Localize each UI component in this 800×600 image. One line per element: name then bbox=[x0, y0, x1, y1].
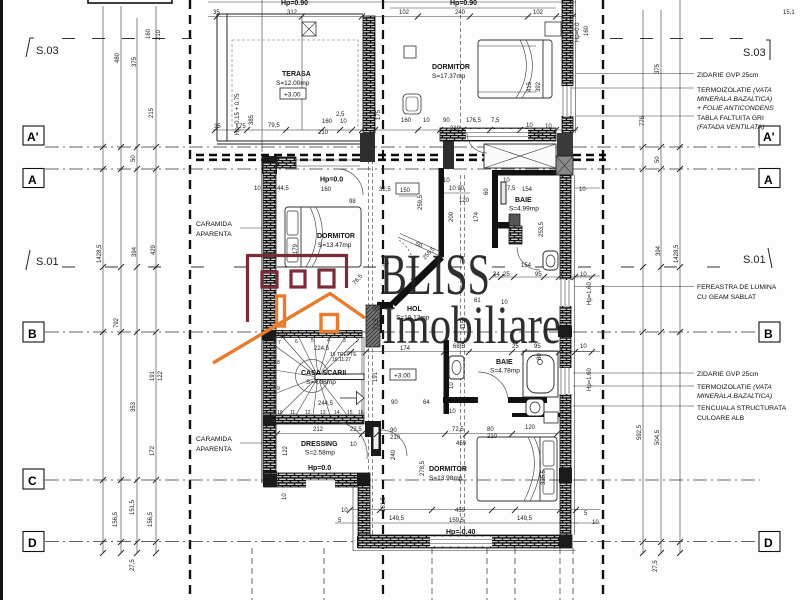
svg-text:Hp=0.90: Hp=0.90 bbox=[450, 0, 477, 7]
svg-text:DORMITOR: DORMITOR bbox=[429, 466, 467, 473]
svg-text:S=17.37mp: S=17.37mp bbox=[432, 73, 466, 80]
svg-text:210: 210 bbox=[450, 126, 461, 132]
svg-text:160: 160 bbox=[321, 187, 332, 193]
svg-text:+3.00: +3.00 bbox=[284, 92, 301, 99]
svg-text:176,5: 176,5 bbox=[466, 118, 482, 124]
svg-text:Hp=1.60: Hp=1.60 bbox=[587, 281, 593, 305]
svg-text:120: 120 bbox=[459, 198, 470, 204]
svg-text:10: 10 bbox=[580, 272, 587, 278]
svg-text:S=4.78mp: S=4.78mp bbox=[490, 368, 520, 375]
svg-text:14.: 14. bbox=[334, 410, 341, 416]
svg-text:156,5: 156,5 bbox=[113, 511, 119, 527]
svg-text:A': A' bbox=[27, 130, 39, 144]
svg-text:394: 394 bbox=[132, 246, 138, 257]
svg-text:459: 459 bbox=[455, 508, 466, 514]
svg-text:+ FOLIE ANTICONDENS: + FOLIE ANTICONDENS bbox=[697, 105, 774, 112]
svg-text:8: 8 bbox=[277, 360, 280, 366]
svg-text:Hp=-0.40: Hp=-0.40 bbox=[446, 529, 475, 536]
svg-text:ZIDARIE GVP 25cm: ZIDARIE GVP 25cm bbox=[697, 371, 759, 378]
svg-text:16.: 16. bbox=[358, 410, 365, 416]
svg-text:4: 4 bbox=[327, 338, 330, 344]
svg-text:13.: 13. bbox=[320, 410, 327, 416]
svg-text:CARAMIDA: CARAMIDA bbox=[196, 436, 232, 443]
svg-text:10: 10 bbox=[423, 118, 430, 124]
svg-text:10: 10 bbox=[443, 178, 450, 184]
svg-text:44,5: 44,5 bbox=[277, 186, 289, 192]
svg-text:S=4.06mp: S=4.06mp bbox=[306, 379, 336, 386]
svg-text:5: 5 bbox=[311, 338, 314, 344]
svg-text:11.: 11. bbox=[290, 410, 297, 416]
svg-text:1428,5: 1428,5 bbox=[97, 244, 103, 263]
svg-text:504,5: 504,5 bbox=[655, 429, 661, 445]
svg-text:215: 215 bbox=[149, 107, 155, 118]
svg-text:160: 160 bbox=[584, 25, 590, 36]
svg-text:APARENTA: APARENTA bbox=[196, 231, 232, 238]
svg-text:TERMOIZOLATIE (VATA: TERMOIZOLATIE (VATA bbox=[697, 87, 772, 94]
svg-text:S.03: S.03 bbox=[743, 47, 766, 59]
svg-text:16.11.27: 16.11.27 bbox=[332, 357, 351, 363]
svg-text:210: 210 bbox=[156, 29, 162, 40]
svg-text:27,5: 27,5 bbox=[130, 559, 136, 571]
svg-text:S=13.47mp: S=13.47mp bbox=[318, 242, 352, 249]
svg-text:S.01: S.01 bbox=[36, 256, 59, 268]
svg-text:TENCUIALA STRUCTURATA: TENCUIALA STRUCTURATA bbox=[697, 405, 787, 412]
svg-text:A: A bbox=[764, 173, 773, 187]
svg-text:60: 60 bbox=[484, 188, 490, 195]
svg-text:73,5: 73,5 bbox=[374, 318, 380, 330]
svg-text:160: 160 bbox=[401, 118, 412, 124]
svg-text:APARENTA: APARENTA bbox=[196, 446, 232, 453]
svg-text:172: 172 bbox=[150, 445, 156, 456]
svg-text:10: 10 bbox=[592, 520, 599, 526]
svg-text:179: 179 bbox=[293, 243, 299, 254]
svg-text:B: B bbox=[28, 327, 37, 341]
svg-text:79,5: 79,5 bbox=[268, 123, 280, 129]
svg-text:TERASA: TERASA bbox=[282, 71, 311, 78]
svg-text:TABLA FALTUITA GRI: TABLA FALTUITA GRI bbox=[697, 115, 764, 122]
svg-text:C: C bbox=[28, 474, 37, 488]
svg-text:15,1: 15,1 bbox=[783, 10, 795, 16]
svg-text:259,5: 259,5 bbox=[418, 194, 424, 210]
svg-text:MINERALA BAZALTICA): MINERALA BAZALTICA) bbox=[697, 393, 772, 400]
svg-text:212: 212 bbox=[313, 427, 324, 433]
svg-text:BAIE: BAIE bbox=[515, 197, 532, 204]
svg-text:2: 2 bbox=[356, 338, 359, 344]
svg-text:200: 200 bbox=[449, 211, 455, 222]
svg-text:MINERALA BAZALTICA): MINERALA BAZALTICA) bbox=[697, 96, 772, 103]
svg-text:S=2.58mp: S=2.58mp bbox=[305, 450, 335, 457]
svg-text:102: 102 bbox=[533, 10, 544, 16]
svg-text:S.01: S.01 bbox=[743, 254, 766, 266]
svg-text:174: 174 bbox=[474, 211, 480, 222]
svg-text:7: 7 bbox=[278, 340, 281, 346]
svg-text:122: 122 bbox=[158, 370, 164, 381]
svg-text:253,5: 253,5 bbox=[539, 221, 545, 237]
svg-text:Hp=0.0: Hp=0.0 bbox=[308, 465, 331, 472]
svg-text:415: 415 bbox=[527, 81, 533, 92]
svg-text:Hp=0.0: Hp=0.0 bbox=[320, 177, 343, 184]
svg-text:385: 385 bbox=[249, 114, 255, 125]
svg-text:191: 191 bbox=[373, 371, 379, 382]
svg-text:240: 240 bbox=[391, 449, 397, 460]
svg-text:210: 210 bbox=[390, 435, 401, 441]
svg-text:1428,5: 1428,5 bbox=[674, 244, 680, 263]
svg-text:6: 6 bbox=[295, 339, 298, 345]
svg-text:DORMITOR: DORMITOR bbox=[317, 233, 355, 240]
svg-text:(FATADA VENTILATA): (FATADA VENTILATA) bbox=[697, 124, 764, 131]
svg-text:90: 90 bbox=[443, 118, 450, 124]
svg-text:392: 392 bbox=[536, 81, 542, 92]
svg-text:39: 39 bbox=[281, 332, 287, 339]
svg-text:CASA SCARII: CASA SCARII bbox=[301, 370, 346, 377]
svg-text:10 90: 10 90 bbox=[449, 186, 465, 192]
svg-text:10: 10 bbox=[254, 186, 261, 192]
svg-text:CARAMIDA: CARAMIDA bbox=[196, 221, 232, 228]
svg-text:10: 10 bbox=[449, 382, 455, 389]
svg-text:D: D bbox=[764, 536, 773, 550]
svg-text:353: 353 bbox=[131, 401, 137, 412]
svg-text:244,5: 244,5 bbox=[318, 401, 334, 407]
svg-text:175: 175 bbox=[376, 109, 382, 120]
svg-text:10: 10 bbox=[340, 119, 347, 125]
svg-text:3: 3 bbox=[343, 338, 346, 344]
svg-text:120: 120 bbox=[525, 425, 536, 431]
svg-text:Hp=1.60: Hp=1.60 bbox=[587, 367, 593, 391]
svg-text:B: B bbox=[764, 327, 773, 341]
svg-text:2,5: 2,5 bbox=[336, 112, 345, 118]
svg-text:50: 50 bbox=[655, 156, 661, 163]
svg-text:776: 776 bbox=[640, 115, 646, 126]
svg-text:10: 10 bbox=[282, 493, 288, 500]
svg-text:210: 210 bbox=[487, 434, 498, 440]
svg-text:80: 80 bbox=[487, 427, 494, 433]
svg-text:7,5: 7,5 bbox=[491, 118, 500, 124]
svg-text:CULOARE ALB: CULOARE ALB bbox=[697, 415, 745, 422]
svg-text:375: 375 bbox=[655, 63, 661, 74]
svg-text:429: 429 bbox=[151, 244, 157, 255]
svg-text:S=4.99mp: S=4.99mp bbox=[509, 206, 539, 213]
svg-text:72,5: 72,5 bbox=[452, 427, 464, 433]
svg-text:+3.00: +3.00 bbox=[394, 373, 411, 380]
svg-text:90: 90 bbox=[391, 400, 398, 406]
svg-text:459: 459 bbox=[456, 441, 467, 447]
svg-text:Imobiliare: Imobiliare bbox=[382, 295, 561, 355]
svg-text:161,5: 161,5 bbox=[381, 496, 387, 512]
svg-text:312: 312 bbox=[287, 10, 298, 16]
svg-text:122: 122 bbox=[283, 445, 289, 456]
svg-text:CU GEAM SABLAT: CU GEAM SABLAT bbox=[697, 294, 756, 301]
svg-text:10.: 10. bbox=[277, 410, 284, 416]
svg-text:224,5: 224,5 bbox=[314, 346, 330, 352]
svg-text:15.: 15. bbox=[347, 410, 354, 416]
svg-text:S=12.00mp: S=12.00mp bbox=[276, 80, 310, 87]
svg-text:10: 10 bbox=[526, 123, 533, 129]
svg-text:592,5: 592,5 bbox=[637, 424, 643, 440]
svg-text:S=13.98mp: S=13.98mp bbox=[429, 475, 463, 482]
svg-text:160: 160 bbox=[146, 28, 152, 39]
svg-text:98: 98 bbox=[349, 199, 356, 205]
svg-text:149,5: 149,5 bbox=[517, 516, 533, 522]
svg-text:154: 154 bbox=[521, 263, 532, 269]
svg-text:BAIE: BAIE bbox=[496, 359, 513, 366]
svg-text:35: 35 bbox=[213, 10, 220, 16]
svg-text:TERMOIZOLATIE (VATA: TERMOIZOLATIE (VATA bbox=[697, 384, 772, 391]
svg-text:10: 10 bbox=[580, 344, 587, 350]
svg-text:375: 375 bbox=[132, 56, 138, 67]
svg-text:25: 25 bbox=[503, 272, 510, 278]
svg-text:90: 90 bbox=[390, 428, 397, 434]
svg-text:FEREASTRA DE LUMINA: FEREASTRA DE LUMINA bbox=[697, 284, 777, 291]
svg-text:Hp=0.90: Hp=0.90 bbox=[281, 0, 308, 7]
svg-text:10: 10 bbox=[503, 178, 510, 184]
svg-text:149,5: 149,5 bbox=[389, 516, 405, 522]
svg-text:D: D bbox=[28, 536, 37, 550]
svg-text:S.03: S.03 bbox=[36, 45, 59, 57]
svg-text:Hp=0.0: Hp=0.0 bbox=[575, 22, 581, 42]
svg-text:A': A' bbox=[763, 130, 775, 144]
svg-text:DRESSING: DRESSING bbox=[301, 441, 338, 448]
svg-text:10: 10 bbox=[579, 187, 586, 193]
svg-text:335,5: 335,5 bbox=[541, 469, 547, 485]
svg-text:7,5: 7,5 bbox=[507, 186, 516, 192]
svg-text:A: A bbox=[28, 173, 37, 187]
svg-text:102: 102 bbox=[399, 10, 410, 16]
svg-text:191: 191 bbox=[150, 370, 156, 381]
svg-text:150: 150 bbox=[400, 188, 411, 194]
svg-text:22,5: 22,5 bbox=[350, 427, 362, 433]
svg-text:792: 792 bbox=[114, 317, 120, 328]
svg-text:64: 64 bbox=[423, 400, 430, 406]
svg-text:10: 10 bbox=[545, 124, 552, 130]
svg-text:12.: 12. bbox=[305, 410, 312, 416]
svg-text:156,5: 156,5 bbox=[148, 511, 154, 527]
svg-text:ZIDARIE GVP 25cm: ZIDARIE GVP 25cm bbox=[697, 72, 759, 79]
svg-text:154: 154 bbox=[522, 187, 533, 193]
svg-text:32,5: 32,5 bbox=[379, 187, 391, 193]
svg-text:9: 9 bbox=[277, 386, 280, 392]
svg-text:240: 240 bbox=[455, 10, 466, 16]
svg-text:394: 394 bbox=[656, 245, 662, 256]
svg-text:480: 480 bbox=[115, 52, 121, 63]
svg-text:151,5: 151,5 bbox=[130, 499, 136, 515]
svg-text:27,5: 27,5 bbox=[653, 560, 659, 572]
svg-text:DORMITOR: DORMITOR bbox=[432, 64, 470, 71]
svg-text:95: 95 bbox=[535, 272, 542, 278]
svg-text:10: 10 bbox=[350, 442, 357, 448]
svg-text:10: 10 bbox=[449, 409, 456, 415]
svg-text:160: 160 bbox=[322, 119, 333, 125]
svg-text:159,5: 159,5 bbox=[449, 518, 465, 524]
svg-text:278,5: 278,5 bbox=[420, 460, 426, 476]
svg-text:50: 50 bbox=[131, 155, 137, 162]
